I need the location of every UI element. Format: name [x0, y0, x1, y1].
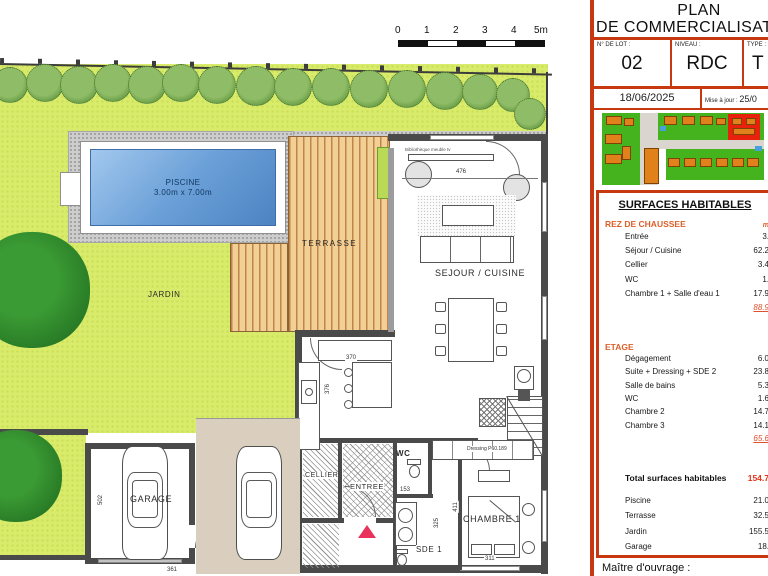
cellier-label: CELLIER: [305, 472, 338, 479]
dimension-label: 153: [399, 487, 411, 493]
lot-number-value: 02: [594, 53, 670, 75]
bar-stool: [344, 368, 353, 377]
row-label: Suite + Dressing + SDE 2: [625, 367, 716, 376]
row-value: 62.2: [753, 246, 768, 255]
garage-wall: [85, 443, 91, 564]
hedge-bush: [94, 64, 132, 102]
boundary-right: [546, 72, 548, 134]
row-value: 6.0: [758, 354, 768, 363]
row-value: 14.1: [753, 421, 768, 430]
info-panel: PLAN DE COMMERCIALISATION N° DE LOT : 02…: [590, 0, 768, 576]
chair: [496, 302, 507, 312]
terrace-label: TERRASSE: [302, 239, 357, 248]
hedge-bush: [26, 64, 64, 102]
total-row: Total surfaces habitables 154.7: [599, 473, 768, 483]
row-value: 3.4: [758, 260, 768, 269]
plan-date: 18/06/2025: [594, 89, 702, 108]
scale-tick: 5m: [534, 25, 548, 36]
hedge-bush: [426, 72, 464, 110]
annex-row: Jardin155.5: [599, 524, 768, 540]
row-label: Terrasse: [625, 511, 656, 520]
chair: [435, 346, 446, 356]
coffee-table: [442, 205, 494, 226]
update-date-value: 25/0: [739, 94, 757, 104]
surface-row: WC1.6: [599, 392, 768, 405]
type-value: T: [744, 53, 768, 75]
hedge-bush: [514, 98, 546, 130]
lot-number-label: N° DE LOT :: [597, 42, 630, 48]
type-label: TYPE :: [747, 42, 766, 48]
sink-basin: [305, 388, 313, 396]
chair: [496, 324, 507, 334]
update-date-label: Mise à jour :: [705, 98, 738, 104]
garage-label: GARAGE: [130, 494, 172, 504]
level-label: NIVEAU :: [675, 42, 701, 48]
hedge-bush: [350, 70, 388, 108]
armchair: [405, 161, 432, 188]
dimension-label: 361: [166, 567, 178, 573]
surface-row: Chambre 314.1: [599, 418, 768, 431]
pool-equipment-box: [60, 172, 82, 206]
surface-row: Entrée3.: [599, 229, 768, 243]
row-label: Jardin: [625, 527, 647, 536]
row-label: Dégagement: [625, 354, 671, 363]
chair: [496, 346, 507, 356]
bedroom-label: CHAMBRE 1: [463, 514, 521, 524]
row-value: 23.8: [753, 367, 768, 376]
partition: [338, 443, 342, 519]
scale-tick: 0: [395, 25, 401, 36]
hedge-bush: [198, 66, 236, 104]
lot-info-row: N° DE LOT : 02 NIVEAU : RDC TYPE : T: [594, 40, 768, 89]
pillow: [494, 544, 515, 555]
update-date: Mise à jour : 25/0: [702, 94, 768, 104]
toilet: [409, 465, 420, 478]
rdc-title: REZ DE CHAUSSEE: [605, 219, 686, 229]
boundary-wall: [0, 555, 88, 560]
terrace-deck: [230, 243, 288, 332]
annex-row: Terrasse32.5: [599, 508, 768, 524]
entrance-marker: [358, 525, 376, 538]
surface-row: Séjour / Cuisine62.2: [599, 243, 768, 257]
sde-label: SDE 1: [416, 545, 442, 554]
window: [542, 182, 547, 232]
bedside-lamp: [522, 503, 535, 516]
bay-window: [388, 148, 394, 332]
window: [430, 135, 494, 140]
row-label: Chambre 3: [625, 421, 665, 430]
annex-row: Garage18.: [599, 539, 768, 555]
toilet: [397, 554, 407, 566]
hedge-bush: [312, 68, 350, 106]
bar-stool: [344, 384, 353, 393]
terrace-deck: [288, 136, 390, 332]
dimension-label: 476: [455, 169, 467, 175]
partition: [393, 494, 433, 498]
pillow: [471, 544, 492, 555]
hedge-bush: [274, 68, 312, 106]
appliance: [518, 390, 530, 401]
bedside-lamp: [522, 541, 535, 554]
row-label: Cellier: [625, 260, 648, 269]
lot-number-cell: N° DE LOT : 02: [594, 40, 672, 86]
row-label: Salle de bains: [625, 381, 675, 390]
etage-title: ETAGE: [605, 342, 634, 352]
partition: [302, 518, 344, 523]
panel-title: PLAN DE COMMERCIALISATION: [594, 0, 768, 40]
surface-row: Chambre 1 + Salle d'eau 117.9: [599, 287, 768, 301]
tv-sideboard: [408, 154, 494, 161]
entree-label: ENTREE: [350, 482, 384, 491]
row-value: 17.9: [753, 289, 768, 298]
row-value: 1.: [762, 275, 768, 284]
dimension-label: 502: [98, 494, 104, 506]
sofa: [420, 236, 514, 263]
kitchen-island: [352, 362, 392, 408]
chair: [435, 324, 446, 334]
rdc-section-header: REZ DE CHAUSSEE m: [599, 219, 768, 229]
partition: [376, 518, 396, 523]
dining-table: [448, 298, 494, 362]
window: [542, 490, 547, 542]
level-cell: NIVEAU : RDC: [672, 40, 744, 86]
scale-tick: 1: [424, 25, 430, 36]
surfaces-title: SURFACES HABITABLES: [599, 199, 768, 211]
surface-row: Salle de bains5.3: [599, 379, 768, 392]
dressing-label: Dressing P60.189: [466, 446, 508, 452]
site-map-canvas: [600, 112, 764, 186]
garden-label: JARDIN: [148, 290, 181, 299]
surface-row: Dégagement6.0: [599, 352, 768, 365]
row-value: 21.0: [753, 496, 768, 505]
sink: [398, 527, 413, 542]
garage-wall: [189, 548, 195, 564]
row-label: Entrée: [625, 232, 649, 241]
hedge-bush: [388, 70, 426, 108]
total-label: Total surfaces habitables: [625, 473, 726, 483]
dimension-line: [402, 178, 538, 179]
etage-subtotal: 65.6: [599, 434, 768, 443]
etage-section-header: ETAGE: [599, 342, 768, 352]
scale-tick: 2: [453, 25, 459, 36]
pool-dimensions: 3.00m x 7.00m: [154, 188, 212, 198]
pool: PISCINE 3.00m x 7.00m: [90, 149, 276, 226]
dimension-label: 411: [453, 501, 459, 513]
annex-row: Piscine21.0: [599, 493, 768, 509]
floor-plan-page: JARDIN 0 1 2 3 4 5m PISCINE 3.00m x 7.00…: [0, 0, 768, 576]
row-value: 18.: [758, 542, 768, 551]
row-value: 32.5: [753, 511, 768, 520]
dimension-label: 370: [345, 355, 357, 361]
maitre-ouvrage-label: Maître d'ouvrage :: [602, 562, 690, 574]
row-label: Chambre 1 + Salle d'eau 1: [625, 289, 720, 298]
scale-tick: 3: [482, 25, 488, 36]
total-value: 154.7: [748, 473, 768, 483]
row-value: 155.5: [749, 527, 768, 536]
pool-label: PISCINE: [166, 178, 201, 188]
hedge-bush: [162, 64, 200, 102]
panel-title-line2: DE COMMERCIALISATION: [594, 19, 768, 36]
hedge-bush: [60, 66, 98, 104]
hedge-bush: [462, 74, 498, 110]
panel-title-line1: PLAN: [594, 2, 768, 19]
unit-label: m: [763, 222, 768, 229]
surface-row: Cellier3.4: [599, 258, 768, 272]
scale-bar: [398, 40, 545, 47]
row-value: 5.3: [758, 381, 768, 390]
scale-tick: 4: [511, 25, 517, 36]
porch-slab: [303, 524, 339, 568]
tv-unit-label: Bibliothèque meuble tv: [404, 147, 452, 153]
surfaces-box: SURFACES HABITABLES REZ DE CHAUSSEE m En…: [596, 190, 768, 558]
washbasin: [517, 369, 531, 383]
garage-wall: [189, 443, 195, 525]
date-row: 18/06/2025 Mise à jour : 25/0: [594, 89, 768, 110]
bench: [478, 470, 510, 482]
site-map-thumbnail: [594, 110, 768, 190]
rdc-subtotal: 88.9: [599, 303, 768, 312]
row-label: Garage: [625, 542, 652, 551]
level-value: RDC: [672, 53, 742, 75]
hedge-bush: [236, 66, 276, 106]
type-cell: TYPE : T: [744, 40, 768, 86]
surface-row: Suite + Dressing + SDE 223.8: [599, 365, 768, 378]
chair: [435, 302, 446, 312]
row-label: Chambre 2: [625, 407, 665, 416]
cellier-floor: [303, 444, 338, 517]
kitchen-counter: [298, 362, 320, 450]
surface-row: WC1.: [599, 272, 768, 286]
dimension-label: 325: [434, 517, 440, 529]
car: [236, 446, 282, 560]
wall-kitchen-terrace: [295, 330, 395, 337]
bar-stool: [344, 400, 353, 409]
window: [460, 566, 520, 571]
row-label: WC: [625, 394, 638, 403]
sink: [398, 508, 413, 523]
row-value: 3.: [762, 232, 768, 241]
hedge-bush: [128, 66, 166, 104]
living-room-label: SEJOUR / CUISINE: [435, 268, 525, 278]
window: [542, 296, 547, 340]
row-label: WC: [625, 275, 638, 284]
wc-label: WC: [396, 449, 411, 458]
row-label: Piscine: [625, 496, 651, 505]
dimension-label: 311: [484, 556, 496, 562]
dimension-label: 376: [325, 383, 331, 395]
surface-row: Chambre 214.7: [599, 405, 768, 418]
row-value: 1.6: [758, 394, 768, 403]
row-label: Séjour / Cuisine: [625, 246, 681, 255]
row-value: 14.7: [753, 407, 768, 416]
stair-hatch: [479, 398, 506, 427]
